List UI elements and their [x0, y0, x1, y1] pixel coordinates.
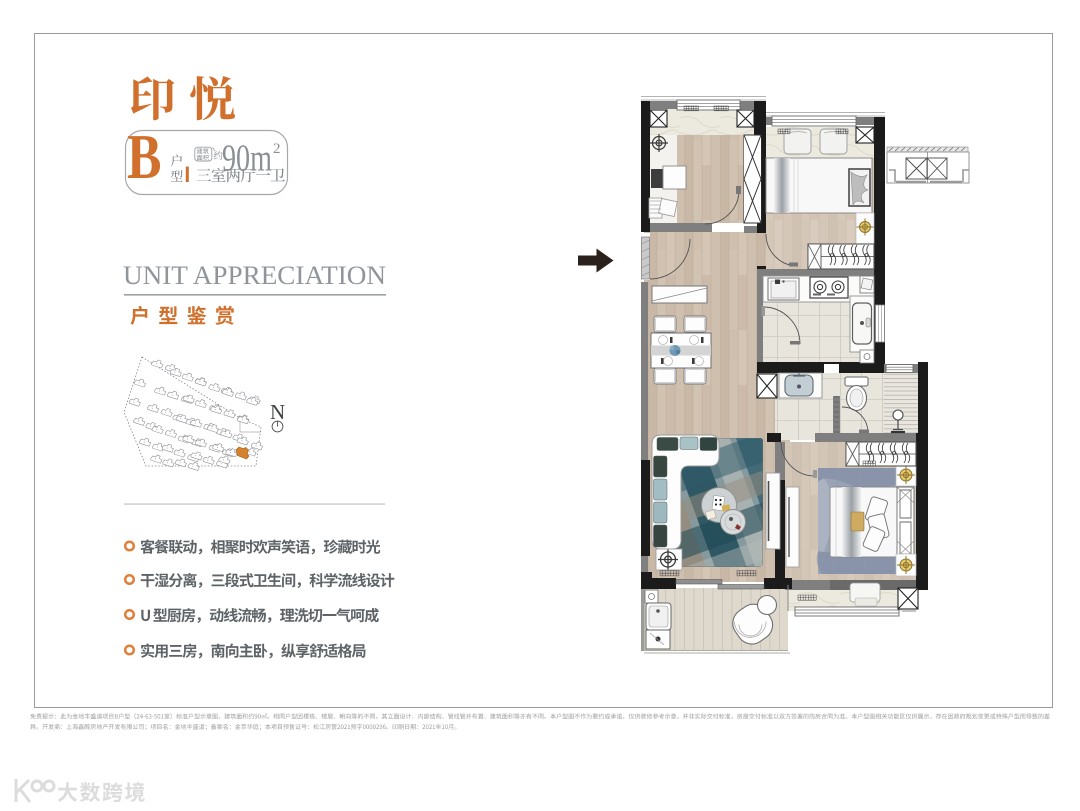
svg-text:UNIT APPRECIATION: UNIT APPRECIATION	[123, 260, 386, 290]
svg-text:N: N	[270, 400, 285, 424]
svg-text:B: B	[127, 121, 162, 192]
svg-text:2: 2	[273, 141, 281, 157]
svg-text:90m: 90m	[222, 138, 272, 180]
